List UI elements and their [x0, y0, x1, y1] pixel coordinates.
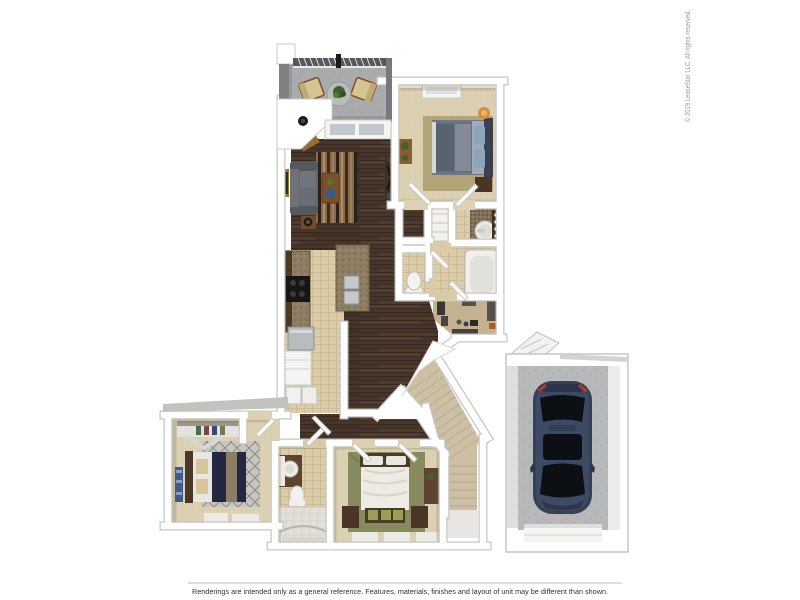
- svg-text:Renderings are intended only a: Renderings are intended only as a genera…: [192, 587, 608, 596]
- svg-text:© 2019 LeaseStar LLC. All righ: © 2019 LeaseStar LLC. All rights reserve…: [684, 10, 692, 122]
